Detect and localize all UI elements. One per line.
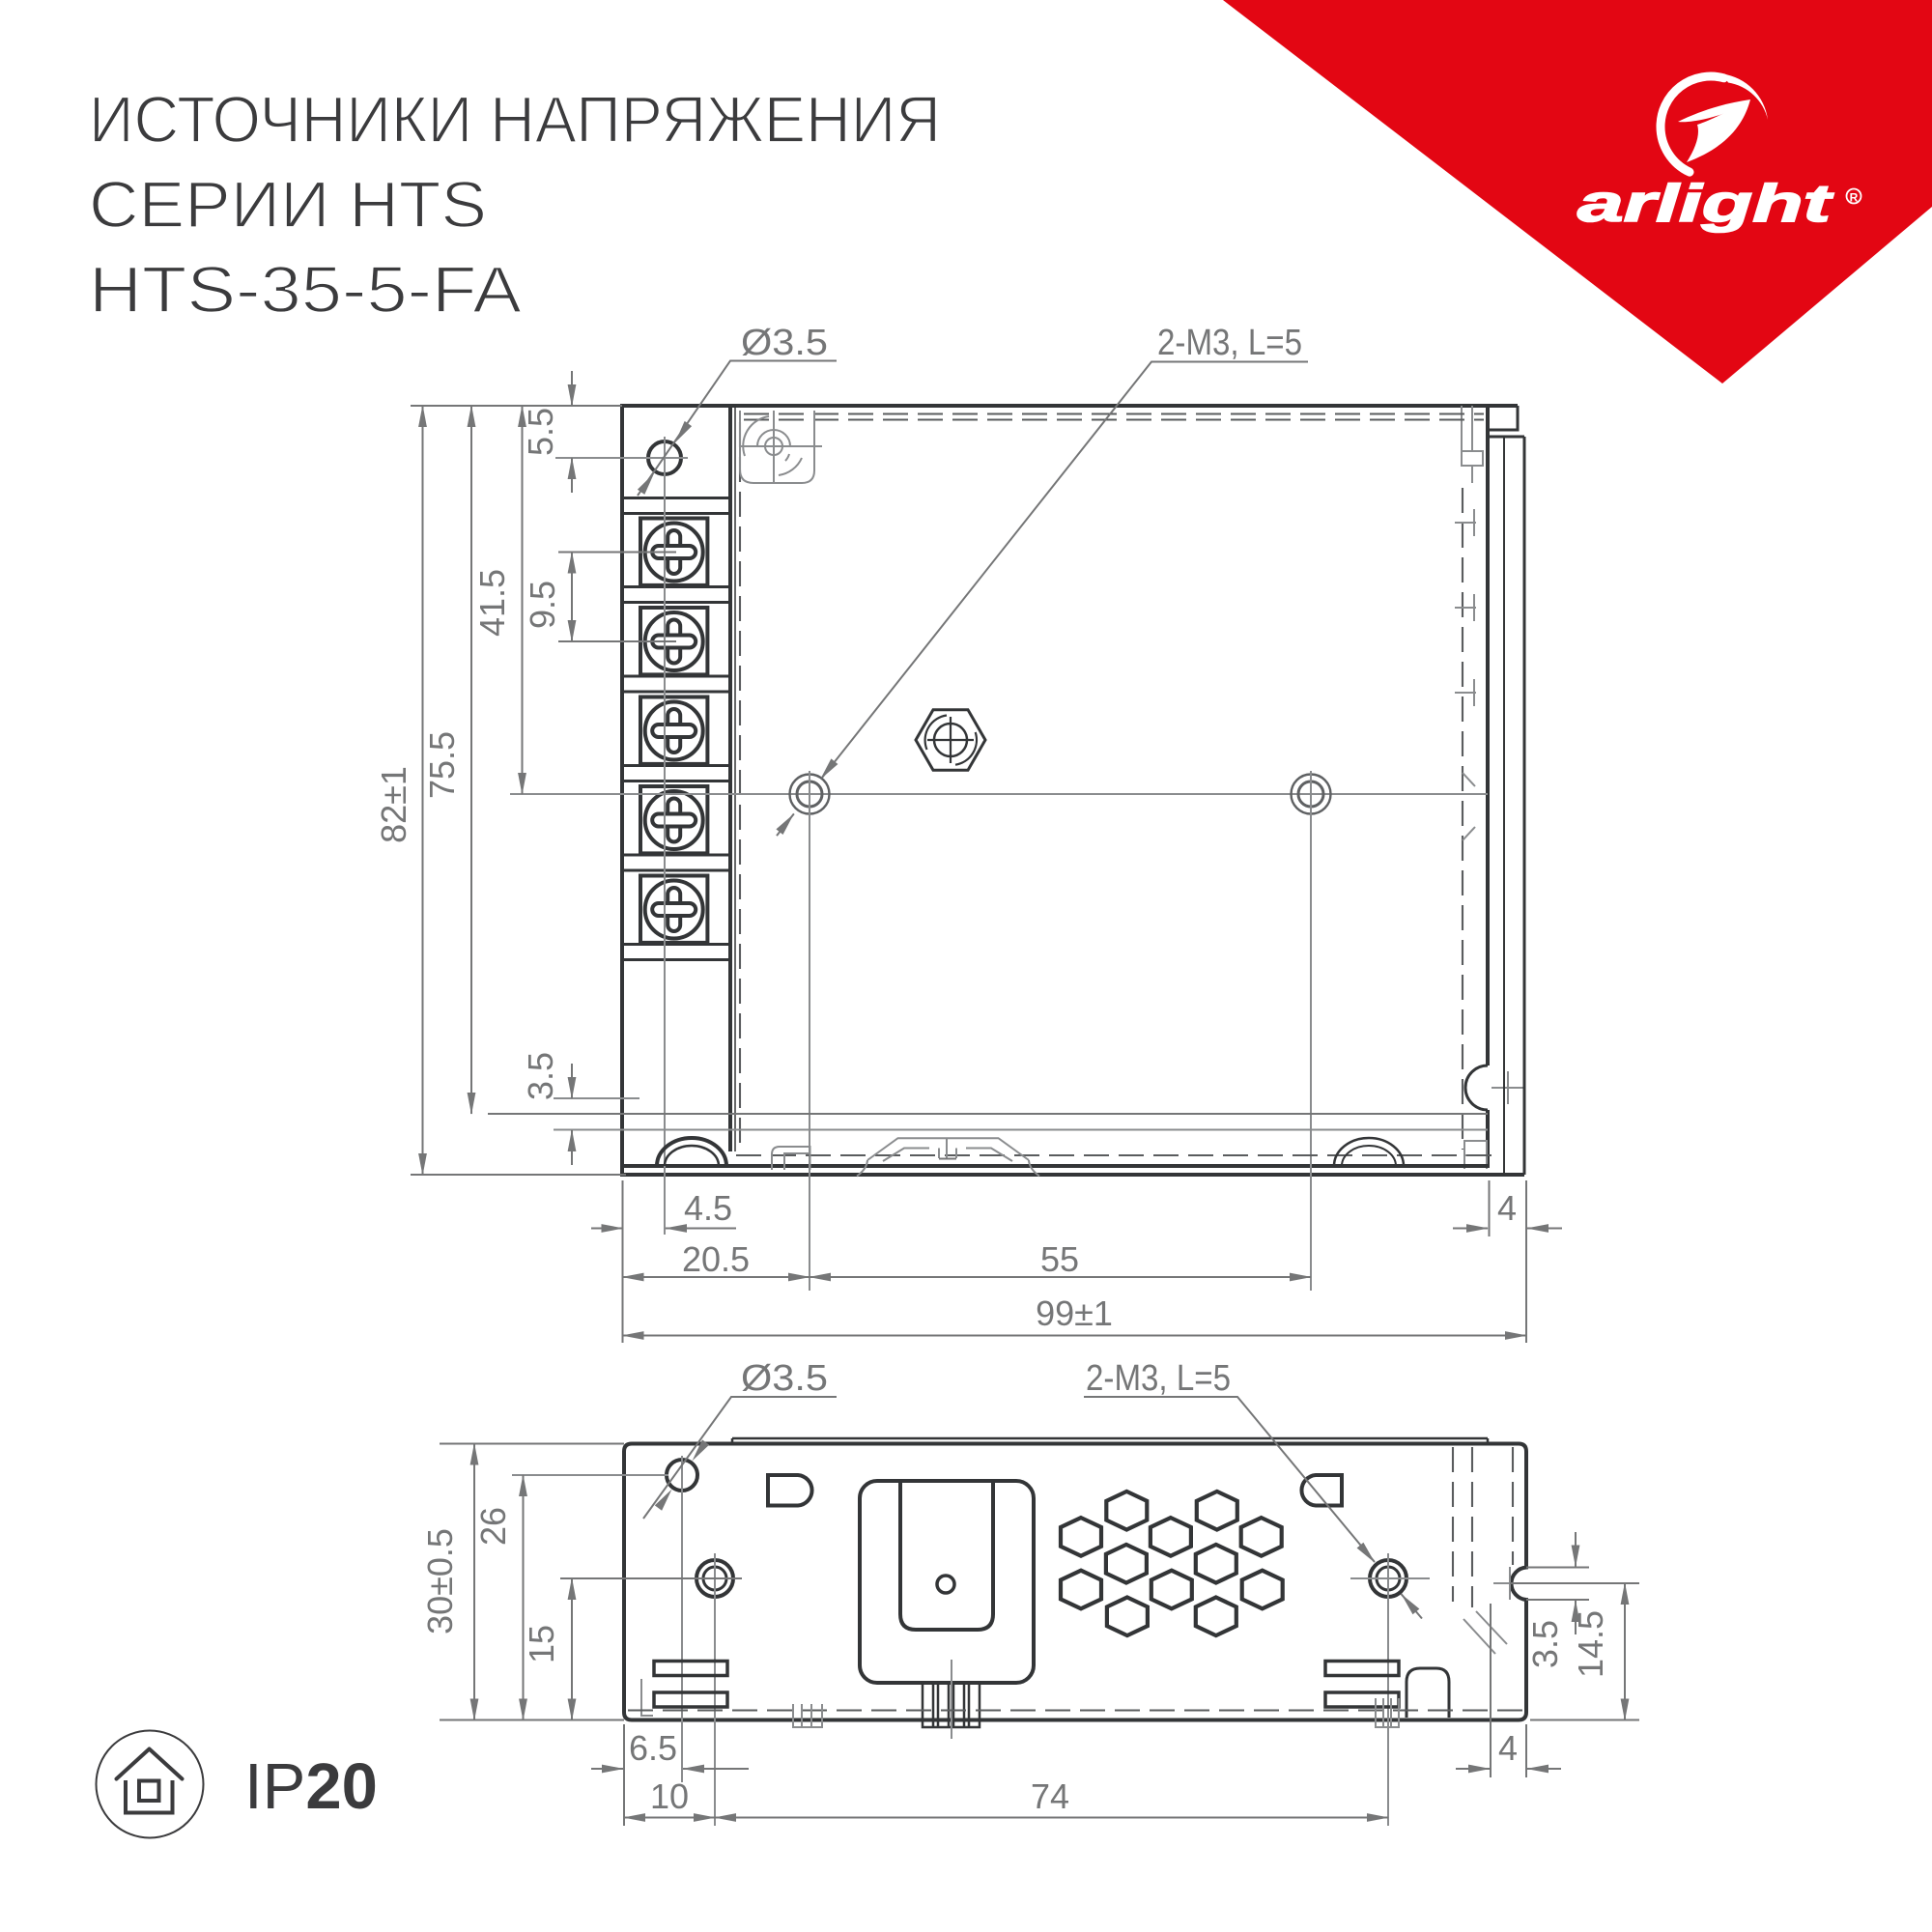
svg-text:2-M3, L=5: 2-M3, L=5 (1157, 323, 1302, 363)
svg-text:75.5: 75.5 (422, 731, 462, 799)
svg-text:СЕРИИ HTS: СЕРИИ HTS (89, 168, 487, 241)
svg-text:10: 10 (650, 1776, 689, 1816)
svg-text:5.5: 5.5 (521, 408, 560, 456)
svg-text:55: 55 (1040, 1239, 1079, 1279)
svg-text:41.5: 41.5 (472, 569, 512, 637)
svg-text:3.5: 3.5 (521, 1052, 560, 1100)
svg-text:6.5: 6.5 (629, 1728, 677, 1768)
svg-text:HTS-35-5-FA: HTS-35-5-FA (89, 253, 523, 327)
svg-text:ИСТОЧНИКИ НАПРЯЖЕНИЯ: ИСТОЧНИКИ НАПРЯЖЕНИЯ (89, 83, 941, 156)
svg-text:30±0.5: 30±0.5 (420, 1528, 460, 1634)
svg-text:4: 4 (1497, 1188, 1517, 1228)
svg-text:2-M3, L=5: 2-M3, L=5 (1086, 1358, 1231, 1399)
svg-text:4.5: 4.5 (684, 1188, 732, 1228)
svg-text:IP20: IP20 (244, 1750, 378, 1823)
svg-text:9.5: 9.5 (523, 581, 562, 629)
svg-text:82±1: 82±1 (374, 766, 413, 843)
svg-text:15: 15 (522, 1625, 561, 1663)
svg-text:20.5: 20.5 (682, 1239, 750, 1279)
svg-text:3.5: 3.5 (1525, 1620, 1565, 1668)
svg-text:74: 74 (1031, 1776, 1069, 1816)
svg-text:4: 4 (1498, 1728, 1518, 1768)
svg-text:R: R (1850, 191, 1859, 205)
svg-text:26: 26 (473, 1507, 513, 1546)
svg-text:Ø3.5: Ø3.5 (741, 323, 828, 363)
svg-text:Ø3.5: Ø3.5 (741, 1358, 828, 1399)
svg-text:99±1: 99±1 (1036, 1293, 1113, 1333)
svg-text:14.5: 14.5 (1571, 1610, 1610, 1678)
svg-text:arlight: arlight (1577, 173, 1834, 233)
